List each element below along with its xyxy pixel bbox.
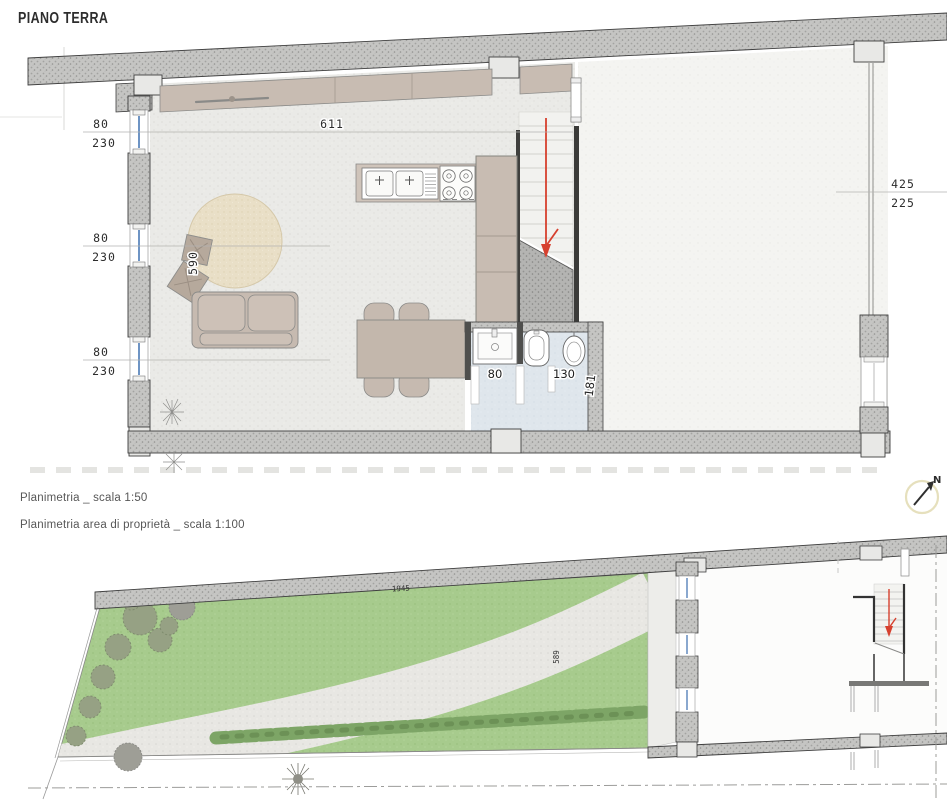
dim-basin-zone: 80	[488, 367, 503, 381]
door-opening	[471, 366, 479, 404]
pier	[677, 742, 697, 757]
staircase	[516, 78, 581, 322]
dim-wc-zone: 130	[553, 367, 575, 381]
plan-drawing: 80 230 80 230 80 230 611 425 225 590 80 …	[0, 0, 947, 800]
dim-window2-height: 230	[92, 250, 116, 264]
dim-window1-height: 230	[92, 136, 116, 150]
dining-table	[357, 320, 465, 378]
boundary-extension	[43, 757, 58, 799]
dim-bath-depth: 181	[582, 374, 599, 397]
window-left-3	[130, 337, 148, 381]
site-window	[679, 688, 695, 712]
tree-icon	[66, 726, 86, 746]
dim-garden-length: 1945	[392, 584, 411, 594]
dim-window1-width: 80	[93, 117, 109, 131]
dim-total-width: 611	[320, 117, 344, 131]
building-interior	[700, 543, 947, 745]
sofa	[192, 292, 298, 348]
pier	[489, 57, 519, 78]
gas-hob-icon	[440, 166, 475, 201]
dim-living-depth: 590	[186, 251, 200, 275]
plant-icon	[163, 451, 185, 473]
compass-needle	[914, 487, 929, 505]
dim-garden-width: 589	[552, 650, 561, 664]
door-opening	[516, 366, 524, 404]
drainer-lines	[425, 174, 436, 195]
spiky-plant-icon	[282, 763, 314, 795]
tree-icon	[160, 617, 178, 635]
north-label: N	[933, 475, 941, 486]
kitchen-tall-unit	[476, 156, 517, 326]
kitchen-sink-icon	[362, 168, 438, 199]
site-stair-top-door	[901, 549, 909, 576]
floor-plan-1-50: 80 230 80 230 80 230 611 425 225 590 80 …	[0, 13, 947, 473]
tree-icon	[105, 634, 131, 660]
site-window	[679, 576, 695, 600]
stair-wall-right	[574, 126, 579, 322]
site-left-wall	[676, 562, 698, 742]
terrace-floor	[578, 46, 888, 431]
tree-icon	[114, 743, 142, 771]
pier	[854, 41, 884, 62]
paved-strip	[648, 561, 676, 748]
pier	[860, 734, 880, 747]
tree-icon	[91, 665, 115, 689]
window-left-2	[130, 224, 148, 267]
dim-right-opening-width: 425	[891, 177, 915, 191]
drawing-sheet: PIANO TERRA Planimetria _ scala 1:50 Pla…	[0, 0, 947, 800]
site-window	[679, 633, 695, 656]
washbasin-icon	[473, 328, 517, 364]
dim-window3-width: 80	[93, 345, 109, 359]
dim-right-opening-height: 225	[891, 196, 915, 210]
tree-icon	[79, 696, 101, 718]
stair-top-door	[571, 78, 581, 122]
pier	[134, 75, 162, 95]
dim-window2-width: 80	[93, 231, 109, 245]
site-plan-1-100: 1945 589	[28, 536, 947, 799]
pier	[860, 546, 882, 560]
north-compass: N	[906, 475, 941, 513]
bidet-icon	[524, 330, 549, 366]
property-boundary-line	[28, 784, 947, 788]
dim-window3-height: 230	[92, 364, 116, 378]
pier	[491, 429, 521, 453]
